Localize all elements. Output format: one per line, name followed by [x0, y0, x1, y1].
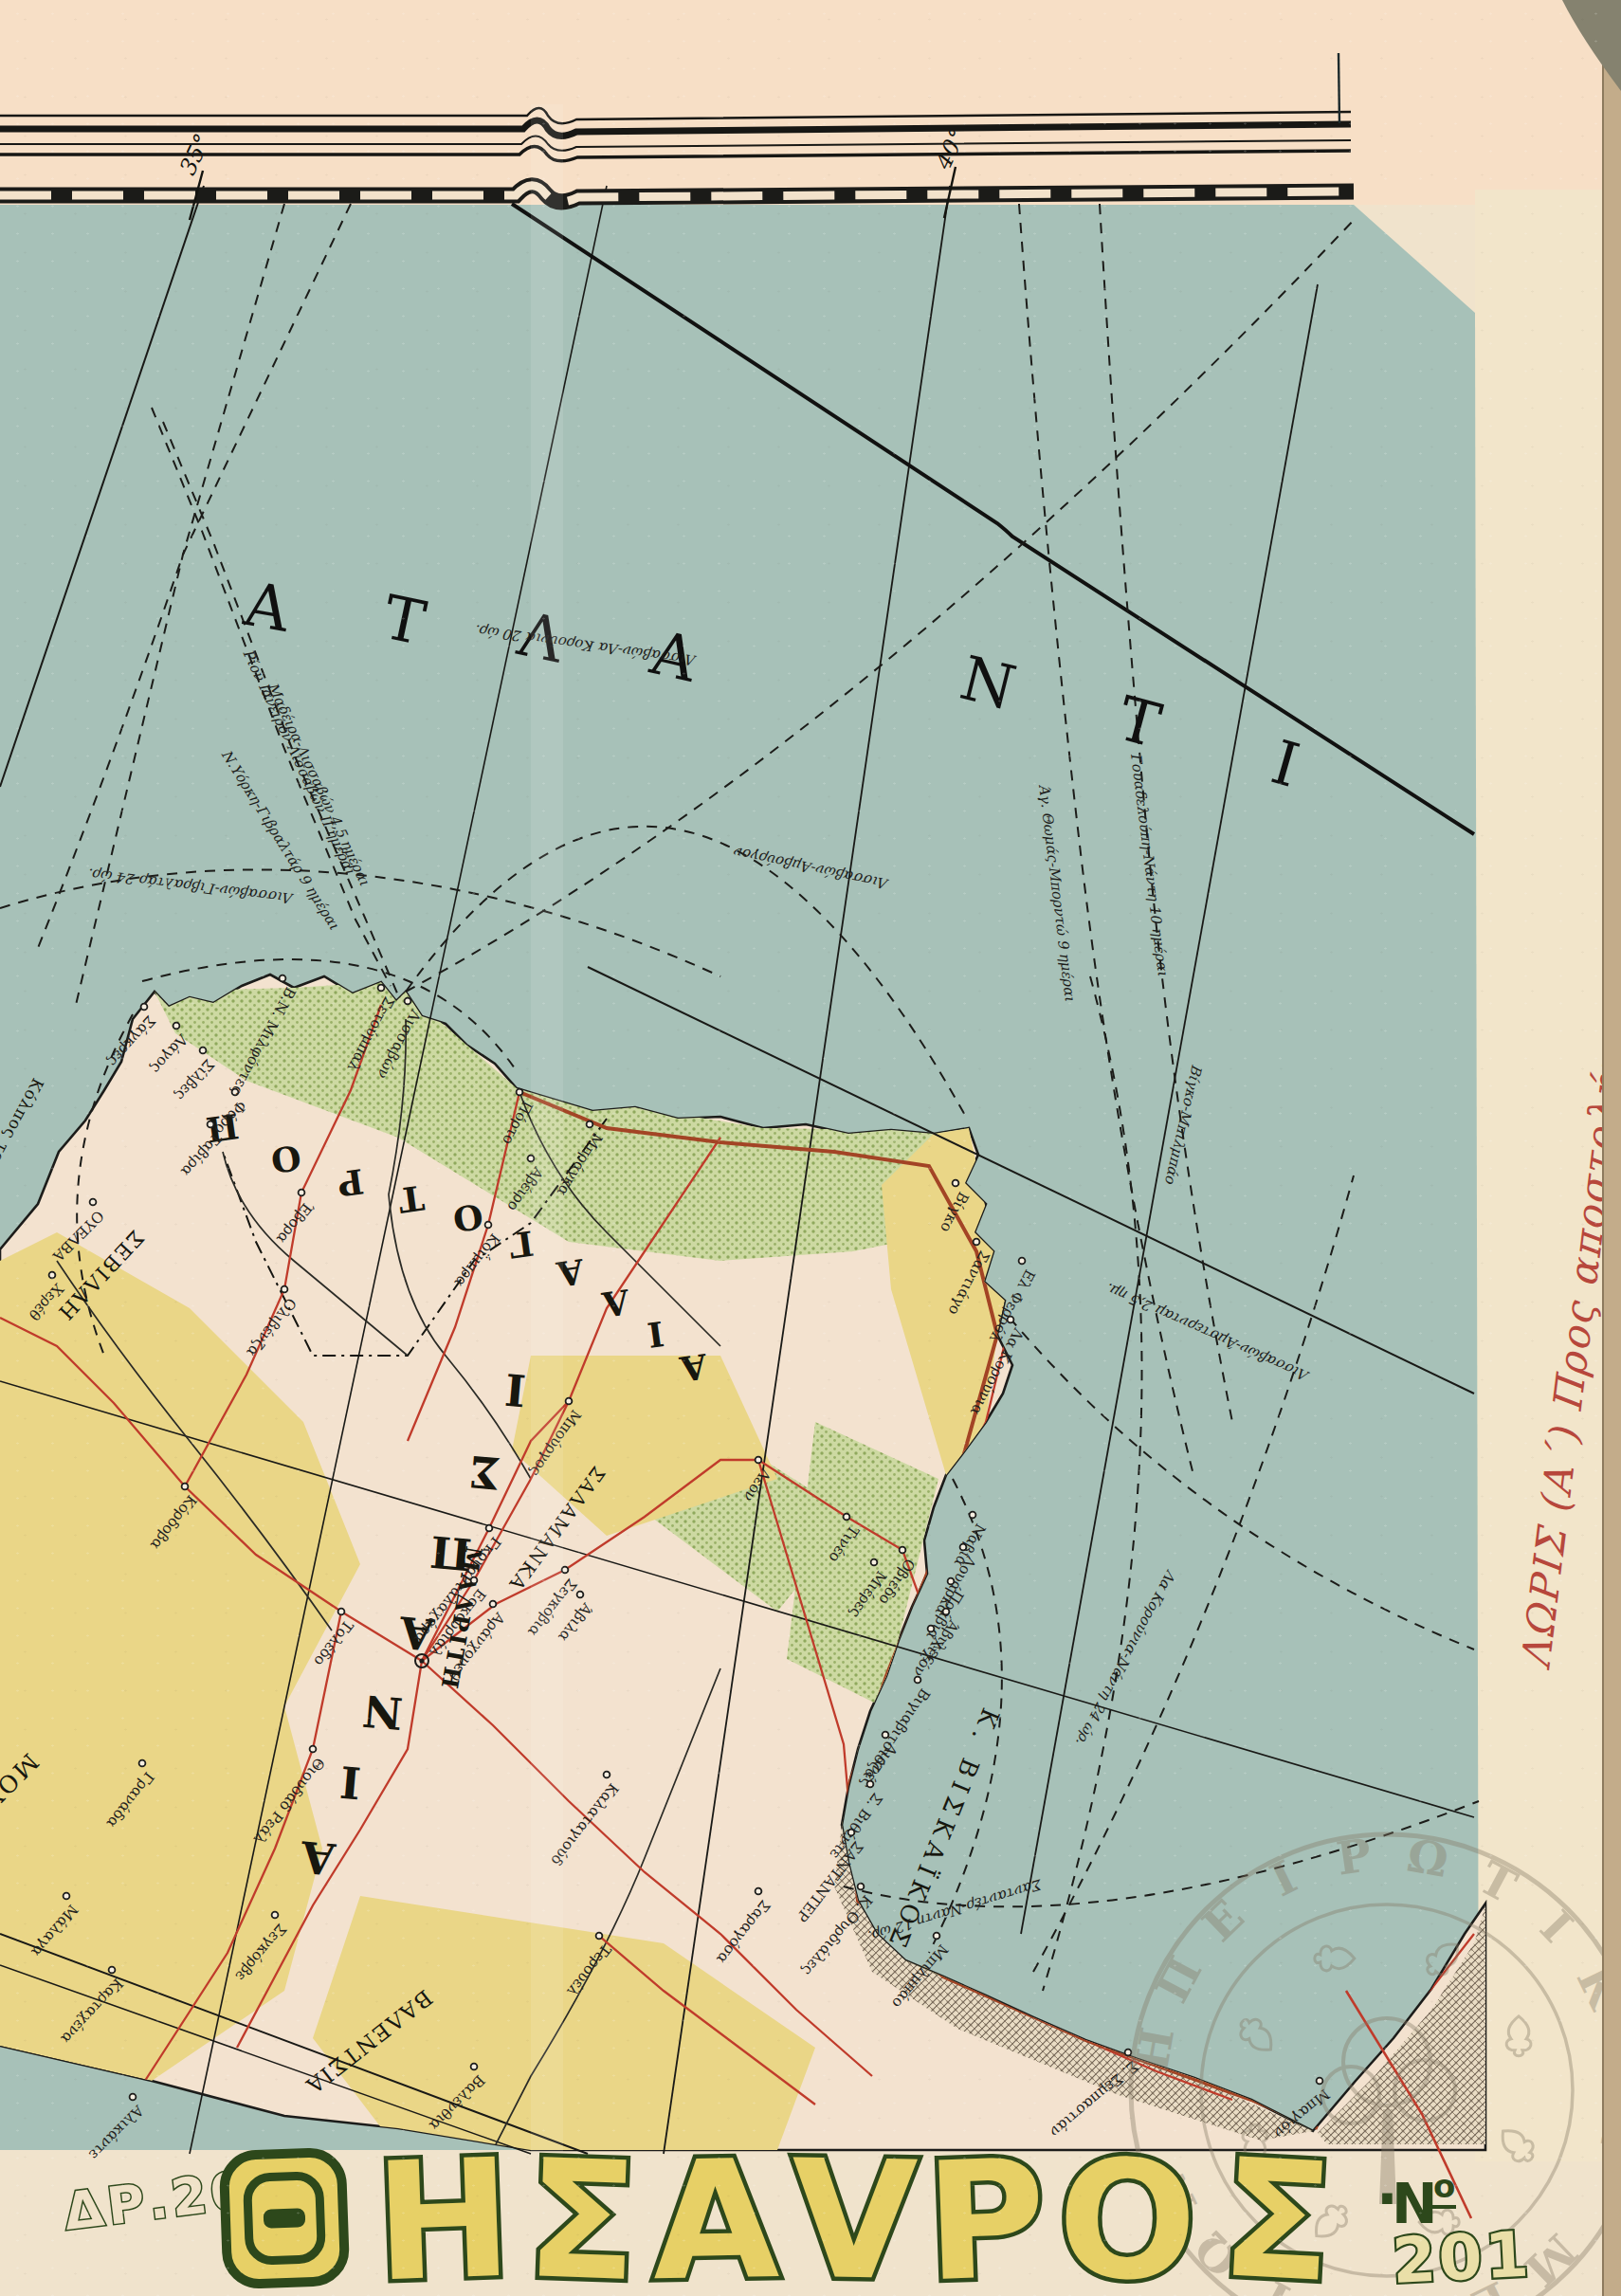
- city-dot: [844, 1514, 850, 1521]
- city-dot: [1019, 1258, 1026, 1265]
- city-dot: [64, 1893, 70, 1900]
- city-dot: [566, 1398, 573, 1405]
- city-dot: [49, 1272, 56, 1279]
- city-dot: [280, 975, 286, 982]
- city-dot: [378, 985, 385, 992]
- city-dot: [1317, 2078, 1323, 2085]
- city-dot: [310, 1746, 317, 1753]
- masthead-title-letter: Η: [372, 2123, 515, 2296]
- city-dot: [485, 1222, 492, 1229]
- map-sheet-page: 35°40°ΑΤΛΑΝΤΙΠΟΡΤΟΓΑΛΙΑΙΣΠΑΝΙΑΜΑΔΡΙΤΗΚ. …: [0, 0, 1621, 2296]
- stamp-ring-letter: Ρ: [1334, 1828, 1375, 1885]
- top-margin: [0, 0, 1621, 205]
- city-dot: [173, 1023, 180, 1030]
- city-dot: [577, 1592, 584, 1598]
- masthead-title-letter: Α: [651, 2124, 781, 2296]
- city-dot: [970, 1512, 976, 1519]
- city-dot: [756, 1888, 762, 1895]
- fold-crease: [531, 104, 563, 2152]
- region-name-letter: Ο: [450, 1196, 485, 1240]
- city-dot: [756, 1457, 762, 1464]
- city-dot: [130, 2094, 137, 2101]
- city-dot: [928, 1626, 935, 1632]
- map-canvas: 35°40°ΑΤΛΑΝΤΙΠΟΡΤΟΓΑΛΙΑΙΣΠΑΝΙΑΜΑΔΡΙΤΗΚ. …: [0, 0, 1621, 2296]
- city-dot: [109, 1967, 116, 1974]
- masthead-title-letter: Ρ: [922, 2123, 1048, 2296]
- masthead-title-letter: Ο: [1056, 2124, 1198, 2296]
- region-name-letter: Σ: [467, 1446, 502, 1500]
- region-name-letter: Α: [298, 1831, 338, 1885]
- city-dot: [953, 1180, 959, 1187]
- city-dot: [943, 1609, 950, 1615]
- page-right-edge: [1604, 0, 1621, 2296]
- city-dot: [960, 1544, 967, 1551]
- city-dot: [883, 1732, 889, 1739]
- city-dot: [596, 1933, 603, 1940]
- city-dot: [200, 1048, 207, 1054]
- city-dot: [517, 1089, 523, 1096]
- city-dot: [208, 1121, 214, 1128]
- city-dot: [299, 1190, 305, 1196]
- city-dot: [486, 1525, 493, 1532]
- masthead-issue-number: 201: [1391, 2217, 1534, 2296]
- city-dot: [948, 1578, 955, 1585]
- region-name-letter: Ν: [360, 1685, 405, 1739]
- city-dot: [141, 1004, 148, 1011]
- city-dot: [338, 1609, 345, 1615]
- region-name-letter: Ρ: [335, 1161, 366, 1204]
- city-dot: [871, 1559, 878, 1566]
- city-dot: [139, 1760, 146, 1767]
- city-dot: [974, 1239, 980, 1246]
- masthead-no-sup: ο: [1433, 2167, 1455, 2205]
- masthead-title-letter: Σ: [523, 2123, 641, 2296]
- city-dot: [282, 1286, 288, 1293]
- city-dot: [848, 1830, 855, 1836]
- masthead-theta-logo: [224, 2152, 346, 2285]
- masthead-title-letter: Σ: [1216, 2123, 1338, 2296]
- city-dot: [587, 1121, 593, 1128]
- masthead-title-letter: V: [790, 2124, 920, 2296]
- stamp-ring-letter: Η: [1124, 2024, 1184, 2075]
- city-dot: [90, 1199, 97, 1206]
- city-dot: [182, 1484, 189, 1490]
- city-dot: [405, 998, 411, 1005]
- masthead-no-underline: [1430, 2205, 1456, 2209]
- city-dot: [490, 1601, 497, 1608]
- capital-dot-center: [419, 1658, 424, 1663]
- city-dot: [858, 1884, 865, 1890]
- city-dot: [471, 2064, 478, 2070]
- city-dot: [604, 1772, 610, 1778]
- pen-mark: [1339, 53, 1339, 123]
- city-dot: [272, 1912, 279, 1919]
- region-name-letter: Ο: [268, 1138, 303, 1181]
- city-dot: [915, 1677, 921, 1684]
- city-dot: [867, 1781, 874, 1788]
- city-dot: [934, 1933, 940, 1940]
- city-dot: [900, 1547, 906, 1554]
